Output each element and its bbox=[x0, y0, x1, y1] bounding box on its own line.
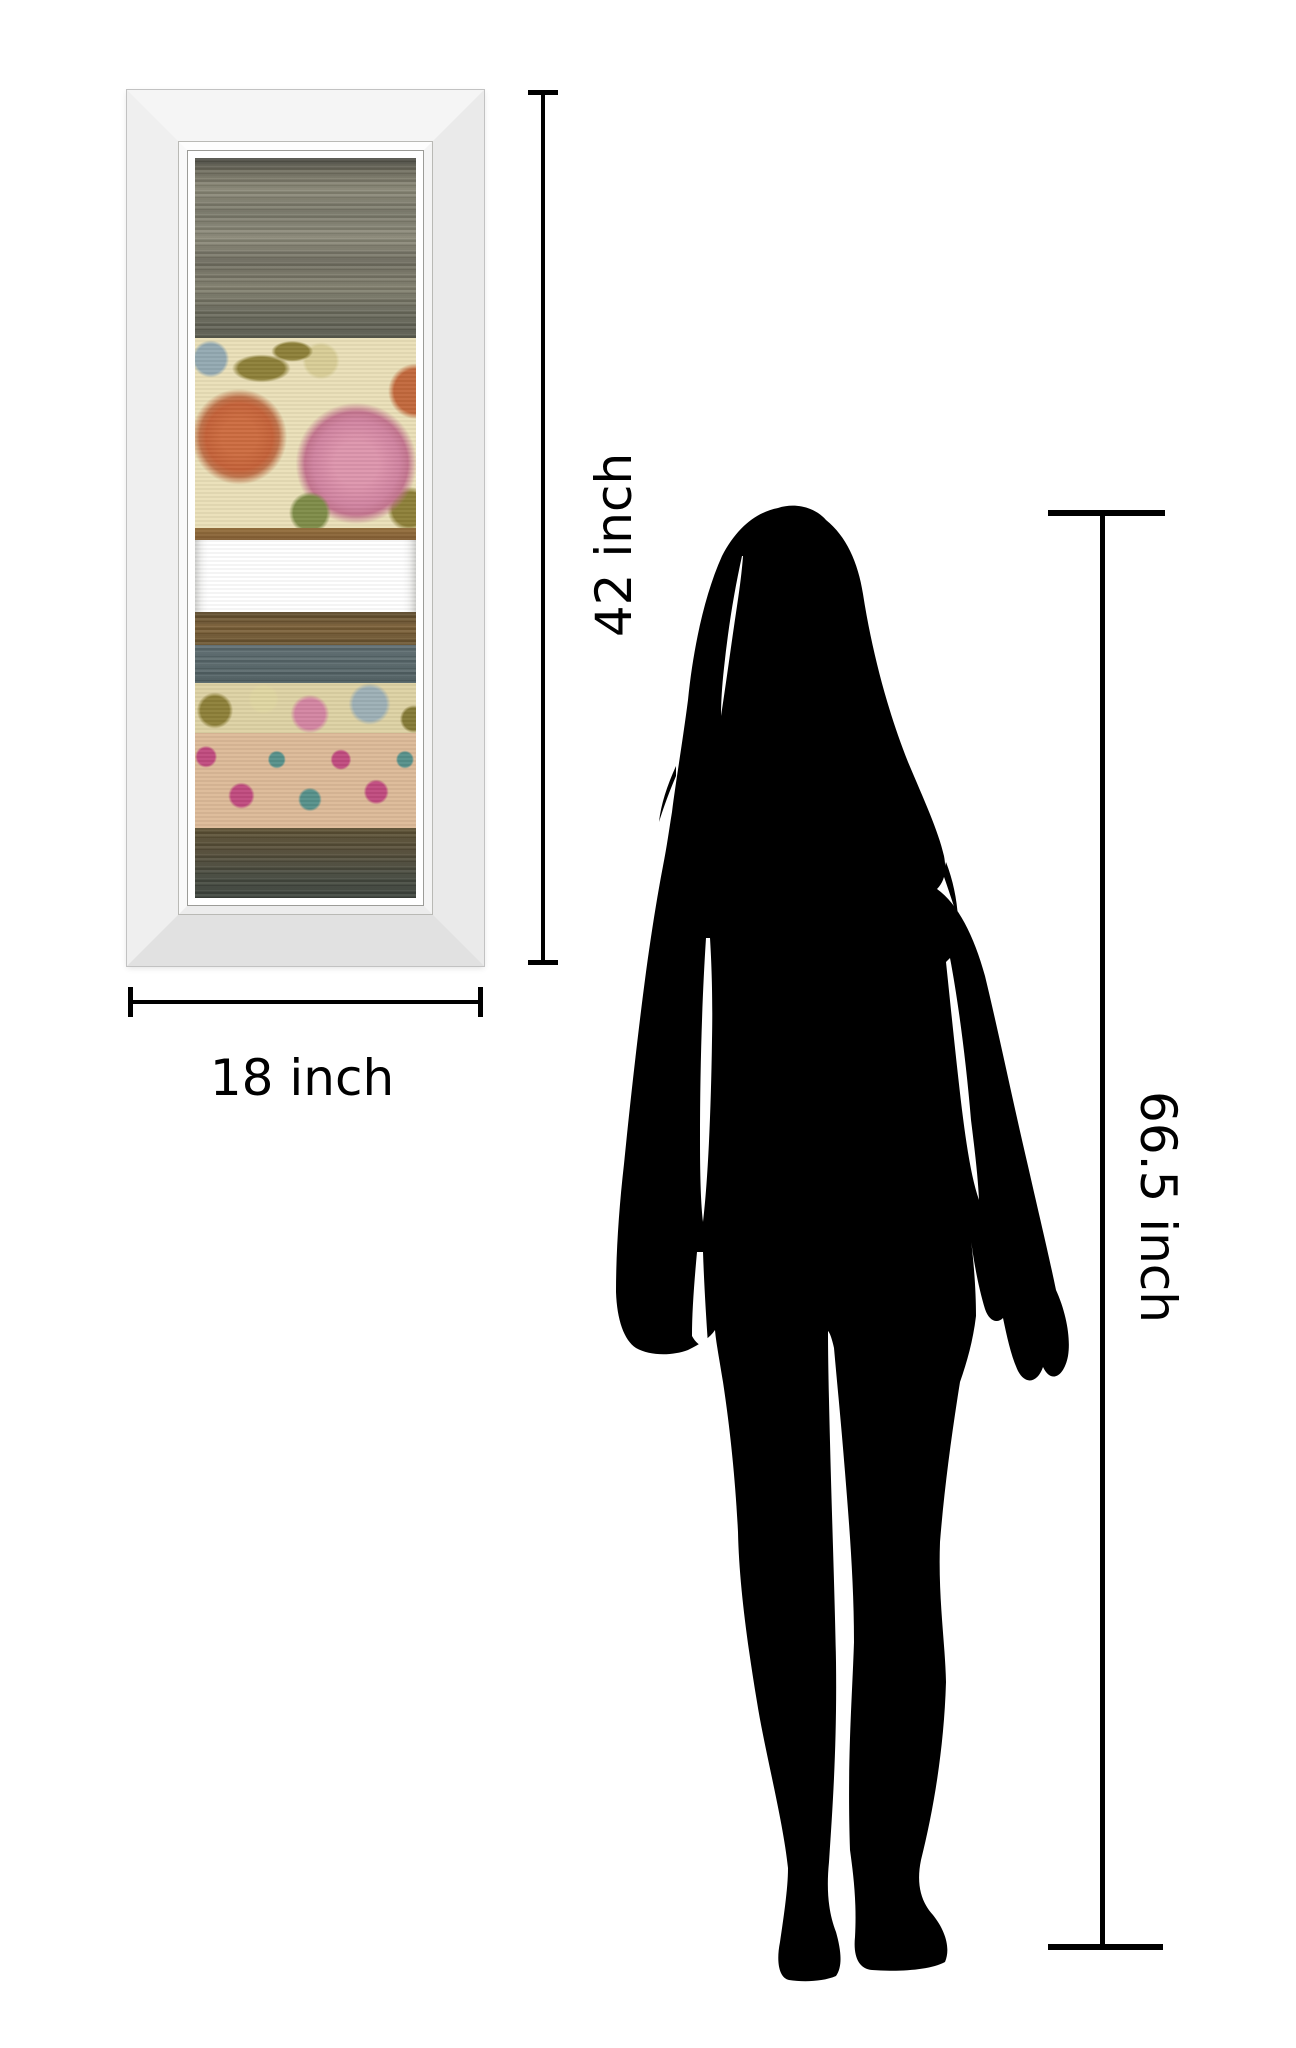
art-height-dimension-line bbox=[528, 90, 558, 965]
art-width-dimension-line bbox=[128, 987, 483, 1017]
person-height-label: 66.5 inch bbox=[1133, 1091, 1183, 1323]
art-width-label: 18 inch bbox=[210, 1053, 394, 1103]
overlay-graphics bbox=[0, 0, 1296, 2048]
woman-silhouette bbox=[616, 506, 1069, 1982]
size-comparison-graphic: 42 inch 18 inch 66.5 inch bbox=[0, 0, 1296, 2048]
art-height-label: 42 inch bbox=[589, 453, 639, 637]
